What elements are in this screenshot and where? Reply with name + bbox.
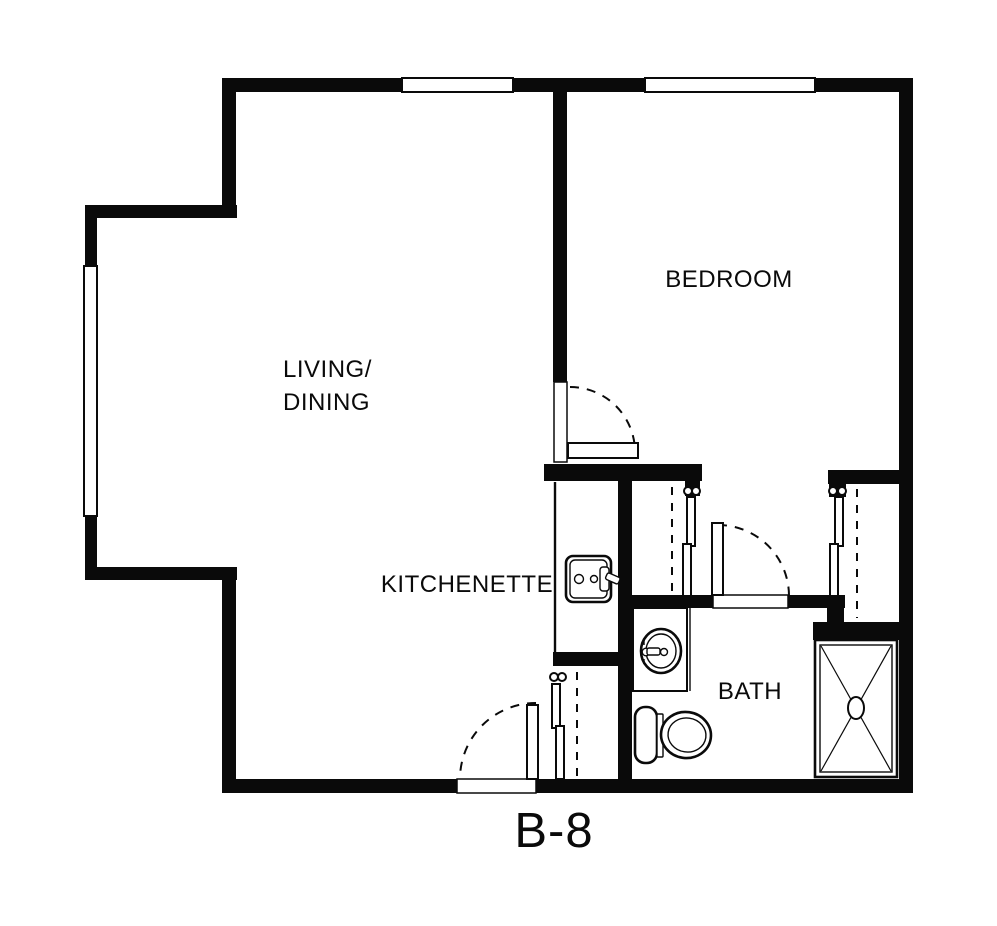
toilet-icon bbox=[635, 707, 714, 763]
wall-sw-step-vertical bbox=[222, 567, 236, 793]
wall-step-block bbox=[827, 608, 844, 623]
window-living-top bbox=[402, 78, 513, 92]
kitchen-sink-icon bbox=[566, 556, 621, 602]
window-living-left bbox=[84, 266, 97, 516]
wall-closet-shower-divider bbox=[813, 622, 913, 640]
bath-label: BATH bbox=[718, 678, 782, 705]
bedroom-door-opening bbox=[554, 382, 567, 462]
wall-bottom-right-segment bbox=[536, 779, 913, 793]
door-pivot-icon bbox=[550, 673, 558, 681]
closet-door-panel bbox=[683, 544, 691, 596]
bath-door-threshold bbox=[713, 595, 788, 608]
floor-plan-drawing: LIVING/ DINING BEDROOM KITCHENETTE BATH … bbox=[0, 0, 997, 926]
wall-sw-step-horizontal bbox=[85, 567, 237, 580]
floor-plan-page: LIVING/ DINING BEDROOM KITCHENETTE BATH … bbox=[0, 0, 997, 926]
wall-top-right-segment bbox=[815, 78, 913, 92]
window-bedroom-top bbox=[645, 78, 815, 92]
hall-left-closet bbox=[672, 487, 700, 596]
wall-living-bedroom-divider bbox=[553, 78, 567, 382]
door-pivot-icon bbox=[829, 487, 837, 495]
bedroom-door-leaf bbox=[568, 443, 638, 458]
bath-door-swing-arc bbox=[718, 525, 789, 596]
walls bbox=[85, 78, 913, 793]
bedroom-door bbox=[568, 387, 638, 458]
bath-sink-icon bbox=[641, 629, 681, 673]
closet-door-panel bbox=[687, 497, 695, 546]
living-dining-label-line2: DINING bbox=[283, 389, 370, 416]
wall-bedroom-south-east bbox=[828, 470, 899, 484]
wall-top-left-segment bbox=[222, 78, 402, 92]
closet-door-panel bbox=[830, 544, 838, 596]
wall-bedroom-south-west bbox=[544, 464, 702, 481]
plan-code-title: B-8 bbox=[514, 804, 593, 858]
wall-right-outer bbox=[899, 78, 913, 793]
wall-bath-north-west bbox=[632, 595, 713, 608]
closet-door-panel bbox=[552, 684, 560, 728]
entry-door-threshold bbox=[457, 779, 536, 793]
closet-door-panel bbox=[835, 497, 843, 546]
shower-drain bbox=[848, 697, 864, 719]
kitchenette-area bbox=[555, 482, 621, 652]
wall-nw-step-horizontal bbox=[85, 205, 237, 218]
bedroom-label: BEDROOM bbox=[665, 266, 793, 293]
closet-door-panel bbox=[556, 726, 564, 779]
wall-kitchenette-south bbox=[553, 652, 632, 666]
shower-icon bbox=[815, 640, 897, 777]
wall-kitchenette-east bbox=[618, 481, 632, 779]
wall-bottom-left-segment bbox=[222, 779, 457, 793]
entry-closet bbox=[550, 672, 577, 779]
wall-left-upper bbox=[85, 205, 97, 268]
entry-door-swing-arc bbox=[460, 703, 536, 779]
bath-door bbox=[712, 523, 789, 596]
kitchenette-label: KITCHENETTE bbox=[381, 571, 553, 598]
wall-nw-step-vertical bbox=[222, 78, 236, 208]
door-pivot-icon bbox=[684, 487, 692, 495]
door-pivot-icon bbox=[558, 673, 566, 681]
door-pivot-icon bbox=[838, 487, 846, 495]
wall-top-middle-segment bbox=[513, 78, 645, 92]
living-dining-label-line1: LIVING/ bbox=[283, 356, 372, 383]
windows bbox=[84, 78, 815, 516]
entry-door bbox=[460, 703, 538, 779]
door-pivot-icon bbox=[692, 487, 700, 495]
bath-door-leaf bbox=[712, 523, 723, 595]
entry-door-leaf bbox=[527, 705, 538, 779]
